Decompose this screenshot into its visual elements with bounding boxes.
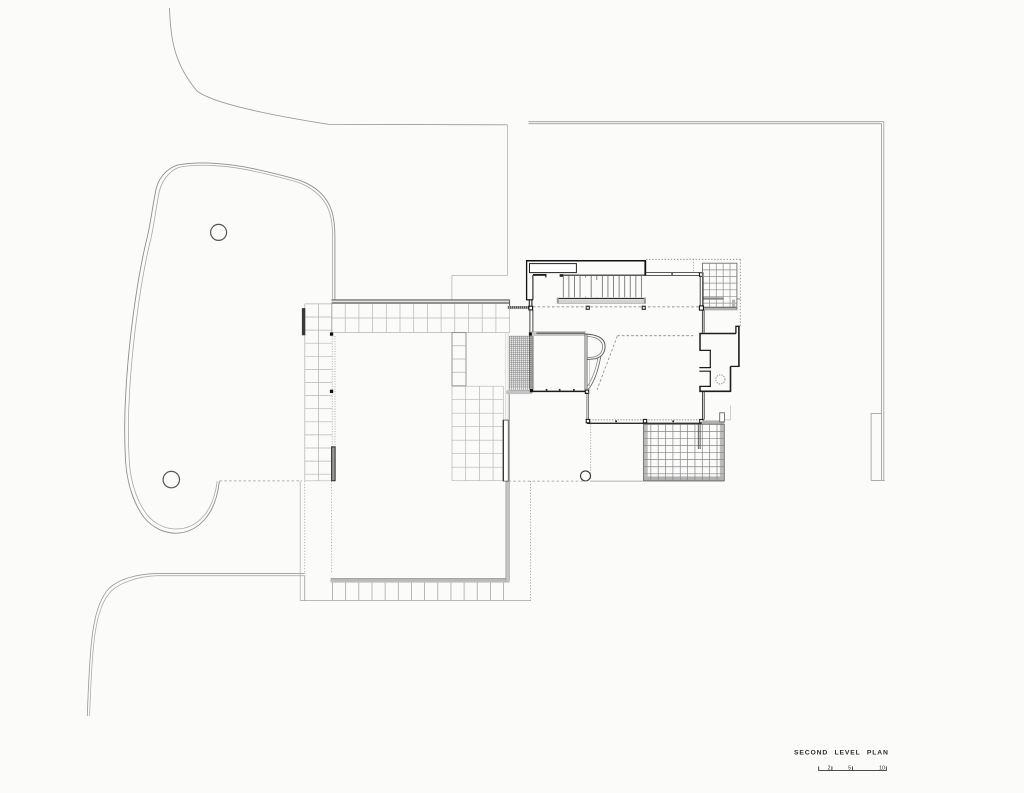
svg-text:10: 10 [879, 765, 885, 771]
svg-text:SECOND LEVEL PLAN: SECOND LEVEL PLAN [794, 749, 889, 756]
svg-text:2: 2 [828, 765, 831, 771]
svg-text:5: 5 [848, 765, 851, 771]
